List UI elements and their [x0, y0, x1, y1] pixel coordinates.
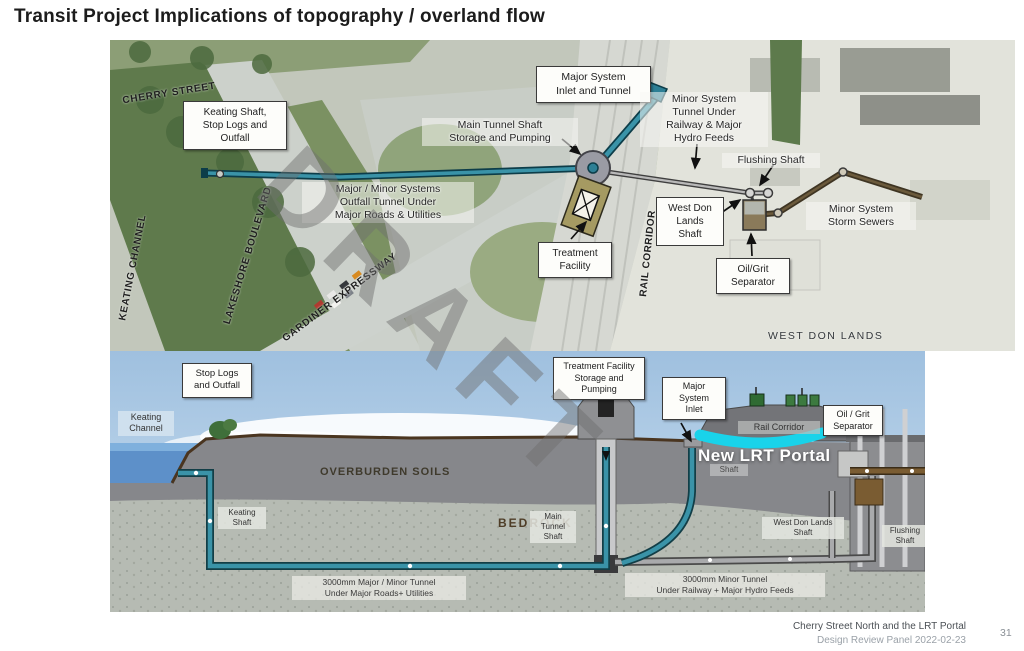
label-main-tunnel-shaft-section: Main Tunnel Shaft	[530, 511, 576, 543]
page-number: 31	[1000, 627, 1012, 639]
note-minor-system-tunnel: Minor System Tunnel Under Railway & Majo…	[640, 92, 768, 147]
label-rail-corridor-section: Rail Corridor	[738, 421, 820, 434]
label-new-lrt-portal: New LRT Portal	[698, 446, 831, 466]
note-outfall-tunnel: Major / Minor Systems Outfall Tunnel Und…	[302, 182, 474, 223]
label-overburden-soils: OVERBURDEN SOILS	[320, 466, 450, 478]
label-flushing-shaft-section: Flushing Shaft	[882, 525, 925, 547]
label-treatment-facility: Treatment Facility	[538, 242, 612, 278]
aerial-map-panel: CHERRY STREET KEATING CHANNEL LAKESHORE …	[110, 40, 1015, 351]
label-west-don-lands-shaft-section: West Don Lands Shaft	[762, 517, 844, 539]
label-keating-shaft-outfall: Keating Shaft, Stop Logs and Outfall	[183, 101, 287, 150]
label-major-system-inlet-tunnel: Major System Inlet and Tunnel	[536, 66, 651, 103]
label-west-don-lands-shaft: West Don Lands Shaft	[656, 197, 724, 246]
slide-footer: Cherry Street North and the LRT Portal D…	[793, 620, 966, 647]
note-storm-sewers: Minor System Storm Sewers	[806, 202, 916, 230]
footer-title: Cherry Street North and the LRT Portal	[793, 620, 966, 634]
label-keating-channel-section: Keating Channel	[118, 411, 174, 436]
note-3000mm-minor-tunnel: 3000mm Minor Tunnel Under Railway + Majo…	[625, 573, 825, 597]
note-3000mm-major-tunnel: 3000mm Major / Minor Tunnel Under Major …	[292, 576, 466, 600]
area-west-don-lands: WEST DON LANDS	[768, 330, 883, 342]
slide-title: Transit Project Implications of topograp…	[14, 6, 545, 28]
label-oil-grit-separator-section: Oil / Grit Separator	[823, 405, 883, 436]
label-oil-grit-separator: Oil/Grit Separator	[716, 258, 790, 294]
label-treatment-facility-section: Treatment Facility Storage and Pumping	[553, 357, 645, 400]
note-main-tunnel-shaft: Main Tunnel Shaft Storage and Pumping	[422, 118, 578, 146]
map-oil-grit-separator	[743, 200, 766, 230]
label-major-system-inlet: Major System Inlet	[662, 377, 726, 420]
note-flushing-shaft: Flushing Shaft	[722, 153, 820, 168]
label-keating-shaft-section: Keating Shaft	[218, 507, 266, 529]
label-stop-logs-outfall: Stop Logs and Outfall	[182, 363, 252, 398]
footer-subtitle: Design Review Panel 2022-02-23	[793, 634, 966, 648]
cross-section-panel: Stop Logs and Outfall Keating Channel Tr…	[110, 351, 925, 612]
